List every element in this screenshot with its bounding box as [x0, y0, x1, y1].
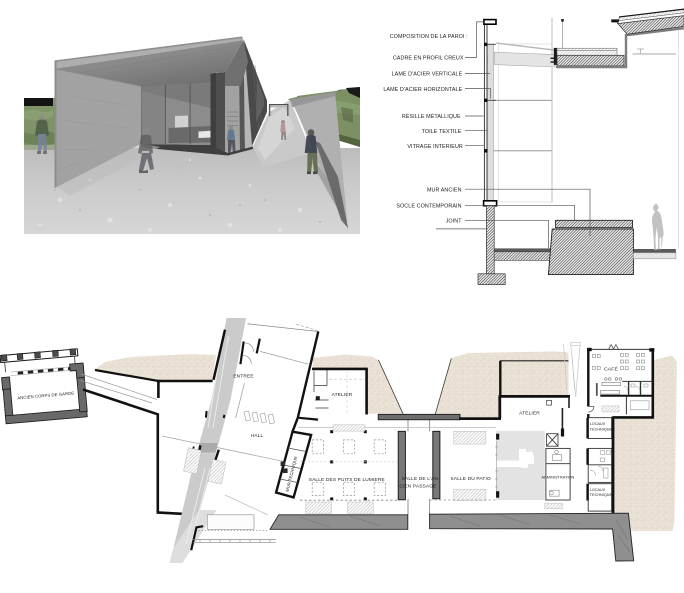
svg-text:ATELIER: ATELIER [332, 392, 353, 398]
svg-text:COMPOSITION DE LA PAROI :: COMPOSITION DE LA PAROI : [390, 34, 468, 40]
svg-text:HALL: HALL [251, 433, 264, 439]
svg-text:SALLE DU PATIO: SALLE DU PATIO [451, 476, 491, 482]
svg-text:SOCLE CONTEMPORAIN: SOCLE CONTEMPORAIN [396, 203, 461, 209]
svg-text:CAFÉ: CAFÉ [604, 366, 618, 373]
svg-text:ATELIER: ATELIER [519, 410, 540, 416]
svg-text:MUR ANCIEN: MUR ANCIEN [427, 187, 462, 193]
svg-text:TECHNIQUES: TECHNIQUES [590, 427, 615, 431]
svg-text:CIEN PASSAGE: CIEN PASSAGE [399, 484, 436, 490]
svg-text:LOCAUX: LOCAUX [590, 422, 606, 426]
svg-text:LAME D'ACIER HORIZONTALE: LAME D'ACIER HORIZONTALE [383, 87, 462, 93]
svg-text:LOCAUX: LOCAUX [590, 488, 606, 492]
svg-text:ENTREE: ENTREE [233, 373, 253, 379]
svg-text:RÉSILLE MÉTALLIQUE: RÉSILLE MÉTALLIQUE [402, 113, 461, 120]
svg-text:TOILE TEXTILE: TOILE TEXTILE [422, 129, 462, 135]
svg-text:CADRE EN PROFIL CREUX: CADRE EN PROFIL CREUX [393, 56, 464, 62]
svg-text:ADMINISTRATION: ADMINISTRATION [541, 476, 574, 480]
svg-text:VITRAGE INTERIEUR: VITRAGE INTERIEUR [407, 144, 463, 150]
svg-text:SALLE DE L'AN: SALLE DE L'AN [402, 476, 439, 482]
svg-text:JOINT: JOINT [446, 218, 463, 224]
svg-text:TECHNIQUES: TECHNIQUES [590, 493, 615, 497]
svg-text:SALLE DES PUITS DE LUMIERE: SALLE DES PUITS DE LUMIERE [309, 477, 385, 483]
svg-text:LAME D'ACIER VERTICALE: LAME D'ACIER VERTICALE [392, 72, 463, 78]
